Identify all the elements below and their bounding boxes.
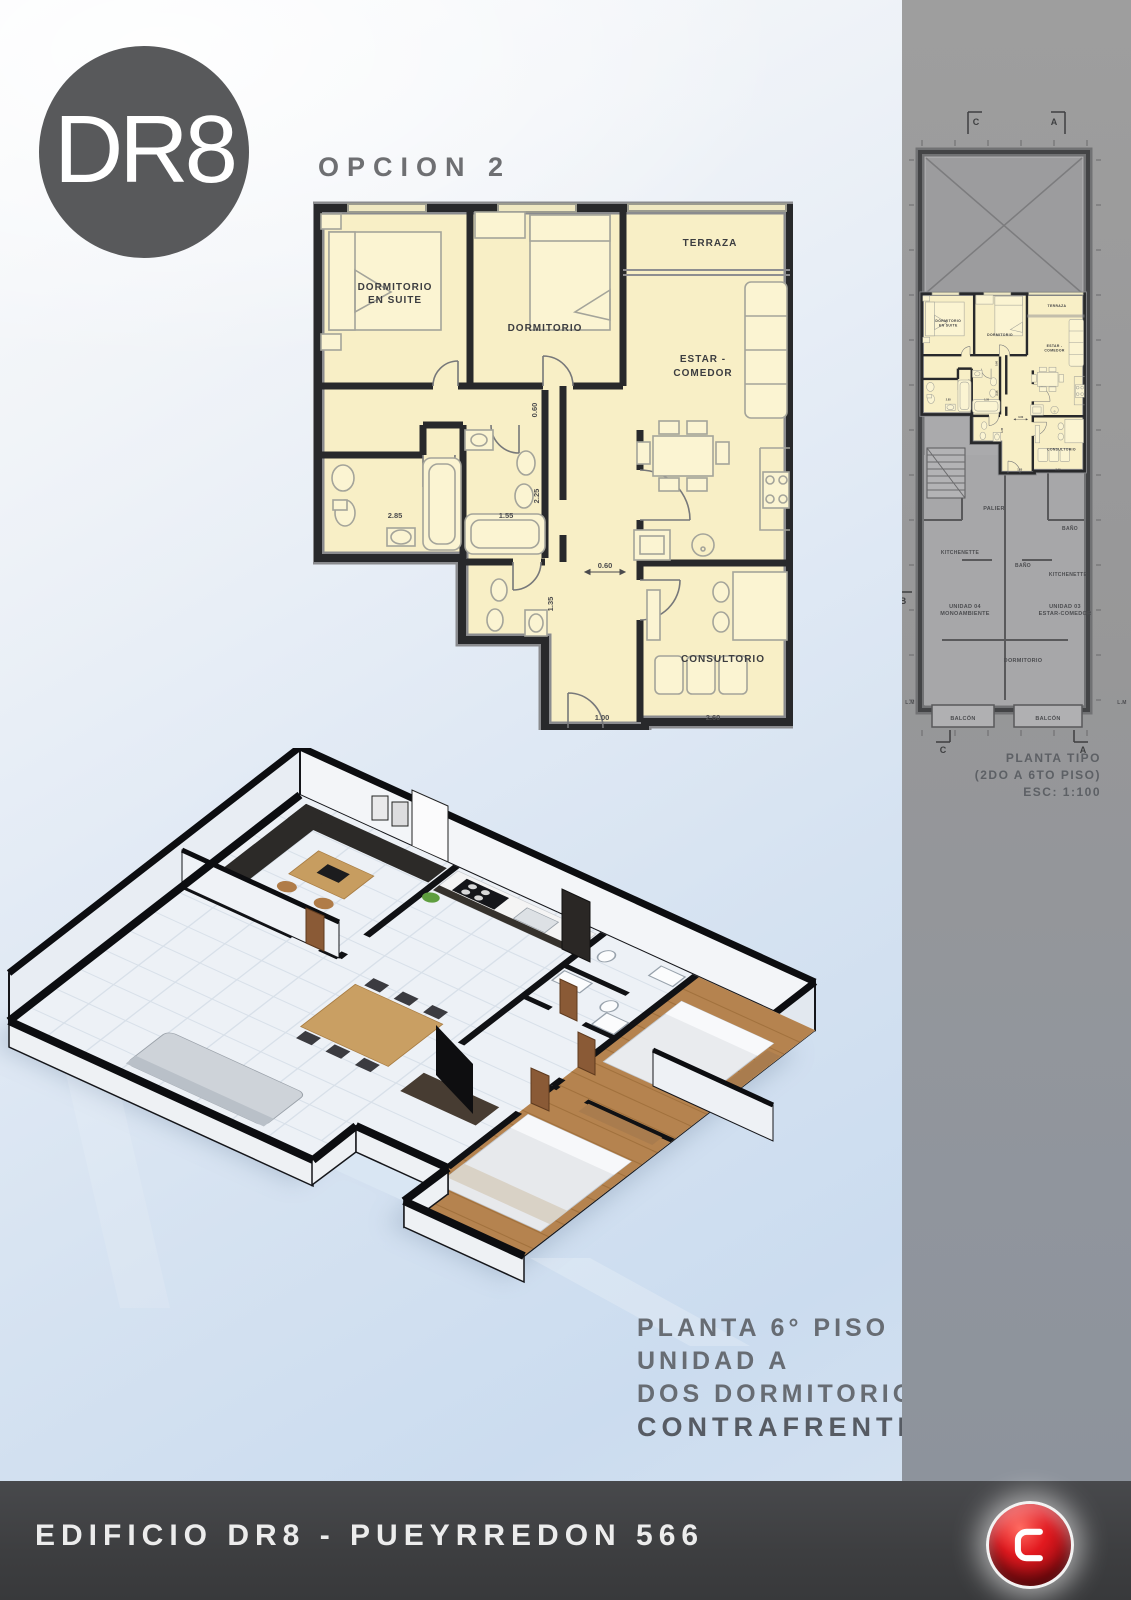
planta-tipo-line-2: (2DO A 6TO PISO) xyxy=(975,767,1101,784)
planta-tipo-plan: C A C A B PALIER BAÑO KITCHENETTE BAÑO K… xyxy=(902,0,1131,760)
caption-line-1: PLANTA 6° PISO xyxy=(637,1312,937,1345)
mini-label-u04-1: UNIDAD 04 xyxy=(949,604,981,610)
mini-label-bano-r: BAÑO xyxy=(1062,525,1078,532)
planta-tipo-caption: PLANTA TIPO (2DO A 6TO PISO) ESC: 1:100 xyxy=(975,750,1101,801)
mini-label-balcon-r: BALCÓN xyxy=(1035,714,1060,722)
mini-label-kitch-l: KITCHENETTE xyxy=(941,550,980,556)
dim-bath2-depth: 2.25 xyxy=(532,489,541,504)
mini-label-kitch-r: KITCHENETTE xyxy=(1049,572,1088,578)
footer-bar: EDIFICIO DR8 - PUEYRREDON 566 xyxy=(0,1481,1131,1600)
kitchen-column xyxy=(562,889,590,962)
main-panel: DR8 OPCION 2 xyxy=(0,0,902,1481)
dim-lowerbath: 1.35 xyxy=(546,597,555,612)
render-3d-apartment xyxy=(0,748,902,1348)
mini-label-bano-c: BAÑO xyxy=(1015,562,1031,569)
label-dormitorio: DORMITORIO xyxy=(508,323,583,334)
marker-c-top: C xyxy=(973,117,980,127)
sidebar-panel: C A C A B PALIER BAÑO KITCHENETTE BAÑO K… xyxy=(902,0,1131,1481)
wall-picture-1 xyxy=(372,796,388,820)
dim-hall-v: 0.60 xyxy=(530,403,539,418)
label-terraza: TERRAZA xyxy=(683,238,738,249)
marker-b-left: B xyxy=(902,596,907,606)
dim-bath1: 2.85 xyxy=(388,511,403,520)
planta-tipo-line-3: ESC: 1:100 xyxy=(975,784,1101,801)
company-logo-c-icon xyxy=(1008,1523,1052,1567)
label-consultorio: CONSULTORIO xyxy=(681,654,765,665)
footer-title: EDIFICIO DR8 - PUEYRREDON 566 xyxy=(35,1519,704,1553)
dim-entry: 1.00 xyxy=(595,713,610,722)
dim-hall-h: 0.60 xyxy=(598,561,613,570)
void-patio xyxy=(922,158,1086,293)
option-title: OPCION 2 xyxy=(318,152,511,183)
mini-label-balcon-l: BALCÓN xyxy=(950,714,975,722)
company-logo xyxy=(986,1501,1074,1589)
marker-c-bottom: C xyxy=(940,745,947,755)
render-caption: PLANTA 6° PISO UNIDAD A DOS DORMITORIOS … xyxy=(637,1312,937,1444)
label-estar-1: ESTAR - xyxy=(680,354,726,365)
caption-line-3: DOS DORMITORIOS xyxy=(637,1378,937,1411)
label-estar-2: COMEDOR xyxy=(673,368,732,379)
plan-windows xyxy=(348,204,786,212)
mini-label-u04-2: MONOAMBIENTE xyxy=(940,611,989,617)
dr8-logo-text: DR8 xyxy=(54,95,234,205)
caption-line-2: UNIDAD A xyxy=(637,1345,937,1378)
dr8-logo: DR8 xyxy=(39,46,249,258)
dim-bath2: 1.55 xyxy=(499,511,514,520)
label-suite-1: DORMITORIO xyxy=(358,282,433,293)
mini-label-dorm: DORMITORIO xyxy=(1004,658,1043,664)
label-suite-2: EN SUITE xyxy=(368,295,422,306)
brochure-page: DR8 OPCION 2 xyxy=(0,0,1131,1600)
wall-picture-2 xyxy=(392,802,408,826)
marker-a-top: A xyxy=(1051,117,1058,127)
mini-label-u03-2: ESTAR-COMEDOR xyxy=(1039,611,1092,617)
mini-label-u03-1: UNIDAD 03 xyxy=(1049,604,1081,610)
dim-consultorio: 2.60 xyxy=(706,713,721,722)
mini-label-palier: PALIER xyxy=(983,506,1005,512)
mini-label-lm-left: L.M xyxy=(905,700,915,706)
planta-tipo-line-1: PLANTA TIPO xyxy=(975,750,1101,767)
mini-label-lm-right: L.M xyxy=(1117,700,1127,706)
floor-plan-option2: DORMITORIO EN SUITE DORMITORIO TERRAZA E… xyxy=(313,200,793,730)
caption-line-4: CONTRAFRENTE xyxy=(637,1411,937,1444)
